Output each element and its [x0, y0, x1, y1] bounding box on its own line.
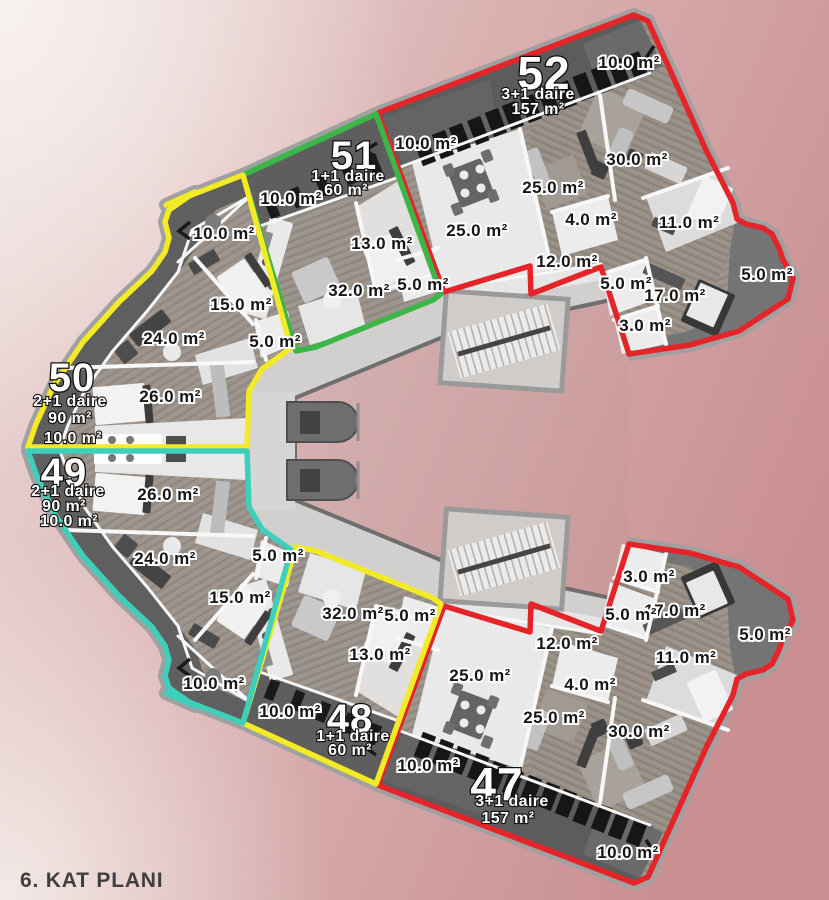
- svg-text:12.0 m²: 12.0 m²: [536, 634, 597, 653]
- svg-text:10.0 m²: 10.0 m²: [397, 756, 458, 775]
- svg-text:5.0 m²: 5.0 m²: [384, 606, 436, 625]
- svg-text:15.0 m²: 15.0 m²: [209, 588, 270, 607]
- svg-text:3.0 m²: 3.0 m²: [619, 316, 671, 335]
- svg-text:13.0 m²: 13.0 m²: [349, 645, 410, 664]
- svg-text:60 m²: 60 m²: [328, 742, 372, 759]
- svg-text:10.0 m²: 10.0 m²: [260, 189, 321, 208]
- svg-text:157 m²: 157 m²: [481, 810, 534, 827]
- svg-text:32.0 m²: 32.0 m²: [328, 281, 389, 300]
- svg-text:11.0 m²: 11.0 m²: [656, 648, 716, 667]
- svg-text:24.0 m²: 24.0 m²: [143, 329, 204, 348]
- svg-text:12.0 m²: 12.0 m²: [536, 252, 597, 271]
- svg-text:10.0 m²: 10.0 m²: [44, 430, 102, 447]
- svg-text:10.0 m²: 10.0 m²: [395, 134, 456, 153]
- svg-text:17.0 m²: 17.0 m²: [644, 286, 705, 305]
- svg-text:4.0 m²: 4.0 m²: [565, 210, 617, 229]
- svg-text:4.0 m²: 4.0 m²: [564, 675, 616, 694]
- svg-text:60 m²: 60 m²: [324, 182, 368, 199]
- svg-text:10.0 m²: 10.0 m²: [193, 224, 254, 243]
- svg-text:24.0 m²: 24.0 m²: [134, 549, 195, 568]
- svg-text:25.0 m²: 25.0 m²: [446, 221, 507, 240]
- svg-text:5.0 m²: 5.0 m²: [741, 265, 793, 284]
- svg-text:157 m²: 157 m²: [511, 101, 564, 118]
- svg-text:30.0 m²: 30.0 m²: [606, 150, 667, 169]
- svg-text:90 m²: 90 m²: [48, 410, 92, 427]
- svg-text:25.0 m²: 25.0 m²: [449, 666, 510, 685]
- svg-text:10.0 m²: 10.0 m²: [183, 674, 244, 693]
- svg-text:5.0 m²: 5.0 m²: [739, 625, 791, 644]
- svg-text:15.0 m²: 15.0 m²: [210, 295, 271, 314]
- svg-text:10.0 m²: 10.0 m²: [598, 53, 659, 72]
- svg-text:3.0 m²: 3.0 m²: [623, 567, 675, 586]
- svg-text:5.0 m²: 5.0 m²: [249, 332, 301, 351]
- svg-text:6. KAT PLANI: 6. KAT PLANI: [20, 869, 163, 892]
- svg-text:5.0 m²: 5.0 m²: [397, 275, 449, 294]
- svg-text:25.0 m²: 25.0 m²: [523, 708, 584, 727]
- svg-text:2+1 daire: 2+1 daire: [33, 393, 106, 410]
- svg-text:25.0 m²: 25.0 m²: [522, 178, 583, 197]
- svg-text:5.0 m²: 5.0 m²: [605, 605, 657, 624]
- svg-text:3+1 daire: 3+1 daire: [475, 793, 548, 810]
- svg-text:10.0 m²: 10.0 m²: [40, 513, 98, 530]
- svg-text:10.0 m²: 10.0 m²: [597, 843, 658, 862]
- svg-text:5.0 m²: 5.0 m²: [252, 546, 304, 565]
- svg-text:26.0 m²: 26.0 m²: [139, 387, 200, 406]
- svg-text:26.0 m²: 26.0 m²: [137, 485, 198, 504]
- svg-text:10.0 m²: 10.0 m²: [259, 702, 320, 721]
- svg-text:30.0 m²: 30.0 m²: [608, 722, 669, 741]
- svg-text:32.0 m²: 32.0 m²: [322, 604, 383, 623]
- svg-text:11.0 m²: 11.0 m²: [659, 213, 719, 232]
- svg-text:13.0 m²: 13.0 m²: [351, 234, 412, 253]
